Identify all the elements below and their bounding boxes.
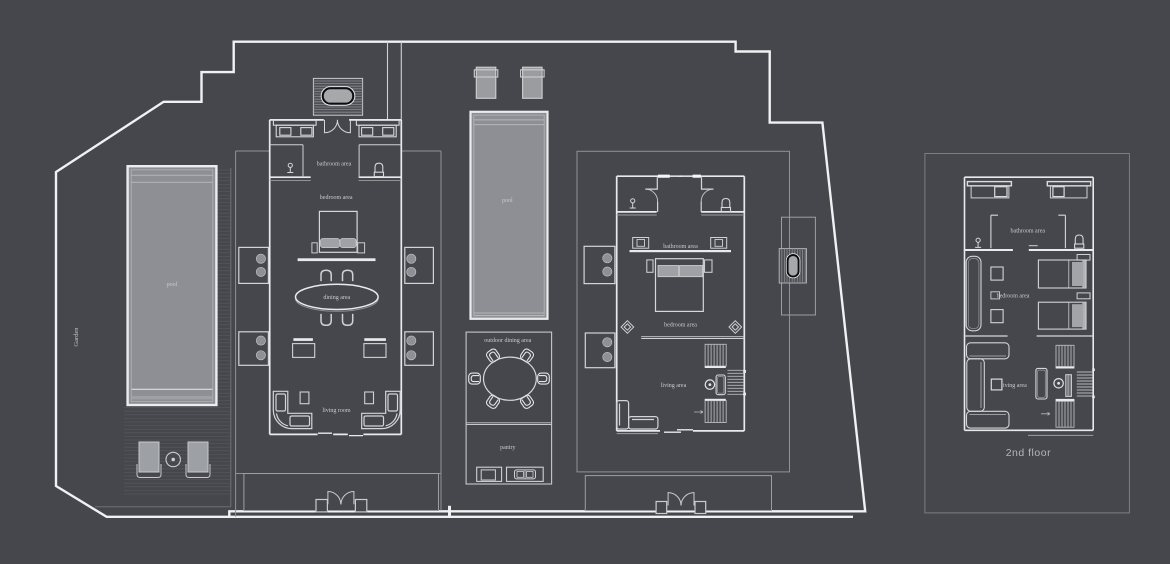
svg-text:outdoor dining area: outdoor dining area xyxy=(484,338,531,344)
svg-text:bathroom area: bathroom area xyxy=(663,244,698,250)
svg-text:Garden: Garden xyxy=(73,327,80,347)
svg-text:bedroom area: bedroom area xyxy=(664,323,697,329)
svg-text:pool: pool xyxy=(502,198,513,204)
svg-text:bedroom area: bedroom area xyxy=(997,294,1030,300)
svg-text:bathroom area: bathroom area xyxy=(1011,229,1046,235)
svg-text:living room: living room xyxy=(322,408,350,414)
svg-text:living area: living area xyxy=(1001,383,1027,389)
svg-text:2nd floor: 2nd floor xyxy=(1006,447,1051,459)
svg-text:bathroom area: bathroom area xyxy=(317,162,352,168)
svg-text:bedroom area: bedroom area xyxy=(320,195,353,201)
svg-text:dining area: dining area xyxy=(323,295,350,301)
svg-text:pantry: pantry xyxy=(500,445,515,451)
svg-text:pool: pool xyxy=(167,282,178,288)
svg-text:living area: living area xyxy=(661,383,687,389)
